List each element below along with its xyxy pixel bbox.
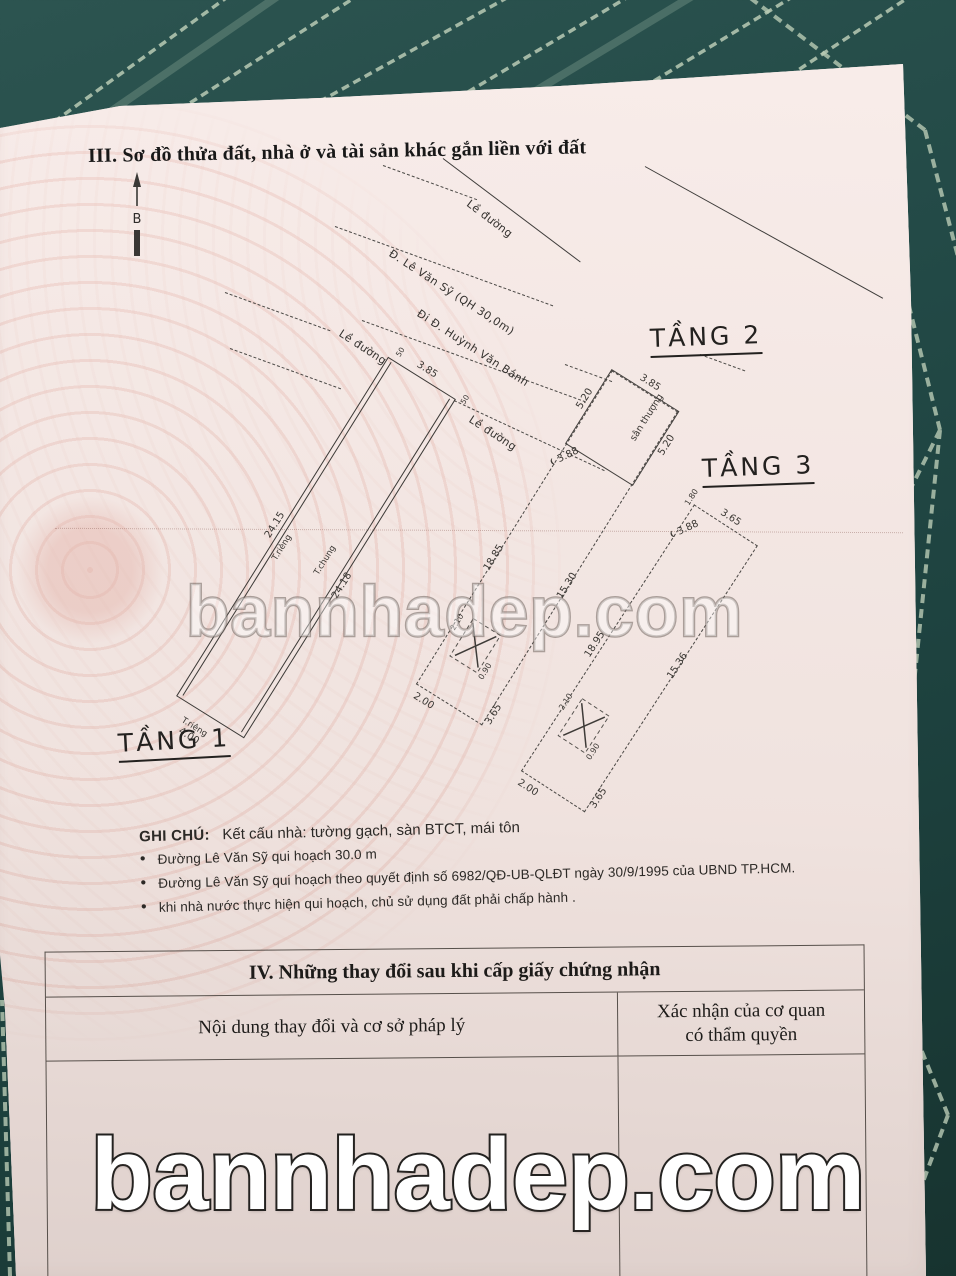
notes-block: GHI CHÚ: Kết cấu nhà: tường gạch, sàn BT… bbox=[139, 812, 821, 925]
floor3-stair-len: 2.10 bbox=[557, 692, 574, 712]
floor1-title: TẦNG 1 bbox=[117, 723, 231, 763]
floor3-house-width: ⌣3.88 bbox=[666, 516, 701, 543]
floor2-rear-side-dim: 3.65 bbox=[483, 702, 504, 727]
curb-left-label: Lề đường bbox=[336, 327, 389, 367]
section4-title: IV. Những thay đổi sau khi cấp giấy chứn… bbox=[249, 958, 661, 985]
north-arrow: B bbox=[123, 170, 151, 262]
section3-title: III. Sơ đồ thửa đất, nhà ở và tài sản kh… bbox=[88, 135, 668, 168]
floor2-rear-width: 2.00 bbox=[398, 683, 449, 721]
floor3-rear-width: 2.00 bbox=[503, 769, 552, 806]
section4-header-row: Nội dung thay đổi và cơ sở pháp lý Xác n… bbox=[46, 990, 865, 1061]
section4-col-content: Nội dung thay đổi và cơ sở pháp lý bbox=[46, 993, 619, 1061]
notes-structure: Kết cấu nhà: tường gạch, sàn BTCT, mái t… bbox=[222, 819, 520, 843]
watermark-bottom: bannhadep.com bbox=[40, 1118, 916, 1233]
watermark-middle: bannhadep.com bbox=[186, 572, 766, 653]
curb-top-label: Lề đường bbox=[464, 197, 515, 240]
north-label: B bbox=[133, 212, 142, 227]
floor2-terrace-label: sân thượng bbox=[628, 392, 666, 443]
floor2-title: TẦNG 2 bbox=[649, 320, 762, 358]
certificate-page: III. Sơ đồ thửa đất, nhà ở và tài sản kh… bbox=[0, 0, 956, 1276]
floor3-title: TẦNG 3 bbox=[701, 450, 814, 488]
floor2-brace-mark: ⌣ bbox=[542, 453, 564, 469]
floor3-brace-mark: ⌣ bbox=[662, 526, 684, 542]
floor3-front-width: 3.65 bbox=[697, 493, 765, 543]
floor3-front-tick: 1.80 bbox=[683, 487, 700, 507]
notes-heading: GHI CHÚ: bbox=[139, 827, 210, 846]
section4-title-row: IV. Những thay đổi sau khi cấp giấy chứn… bbox=[46, 945, 864, 997]
floor2-side-left-dim: 18.85 bbox=[482, 543, 507, 573]
section4-col-confirm-line2: có thẩm quyền bbox=[685, 1024, 797, 1046]
curb-solid-line bbox=[443, 158, 581, 262]
section4-col-confirm-line1: Xác nhận của cơ quan bbox=[657, 1000, 825, 1022]
floor3-rear-side-dim: 3.65 bbox=[588, 786, 609, 811]
floor3-side-right-dim: 15.36 bbox=[666, 651, 691, 681]
le-van-sy-label: Đ. Lê Văn Sỹ (QH 30,0m) bbox=[386, 247, 516, 338]
curb-left-dash-1 bbox=[225, 292, 331, 331]
curb-solid-line-right bbox=[645, 166, 883, 299]
paper-crease bbox=[55, 528, 903, 533]
notes-list: Đường Lê Văn Sỹ qui hoạch 30.0 m Đường L… bbox=[140, 836, 821, 916]
curb-dash-line-top bbox=[383, 165, 477, 200]
floor1-plan: 3.85 50 50 24.15 T.riêng T.chung 24.18 T… bbox=[176, 357, 456, 739]
floor3-stair-mark: 2.10 0.90 bbox=[557, 697, 611, 754]
road-dash-short-2 bbox=[700, 354, 745, 371]
curb-left-dash-2 bbox=[230, 348, 341, 389]
section4-col-confirm: Xác nhận của cơ quan có thẩm quyền bbox=[618, 990, 865, 1055]
